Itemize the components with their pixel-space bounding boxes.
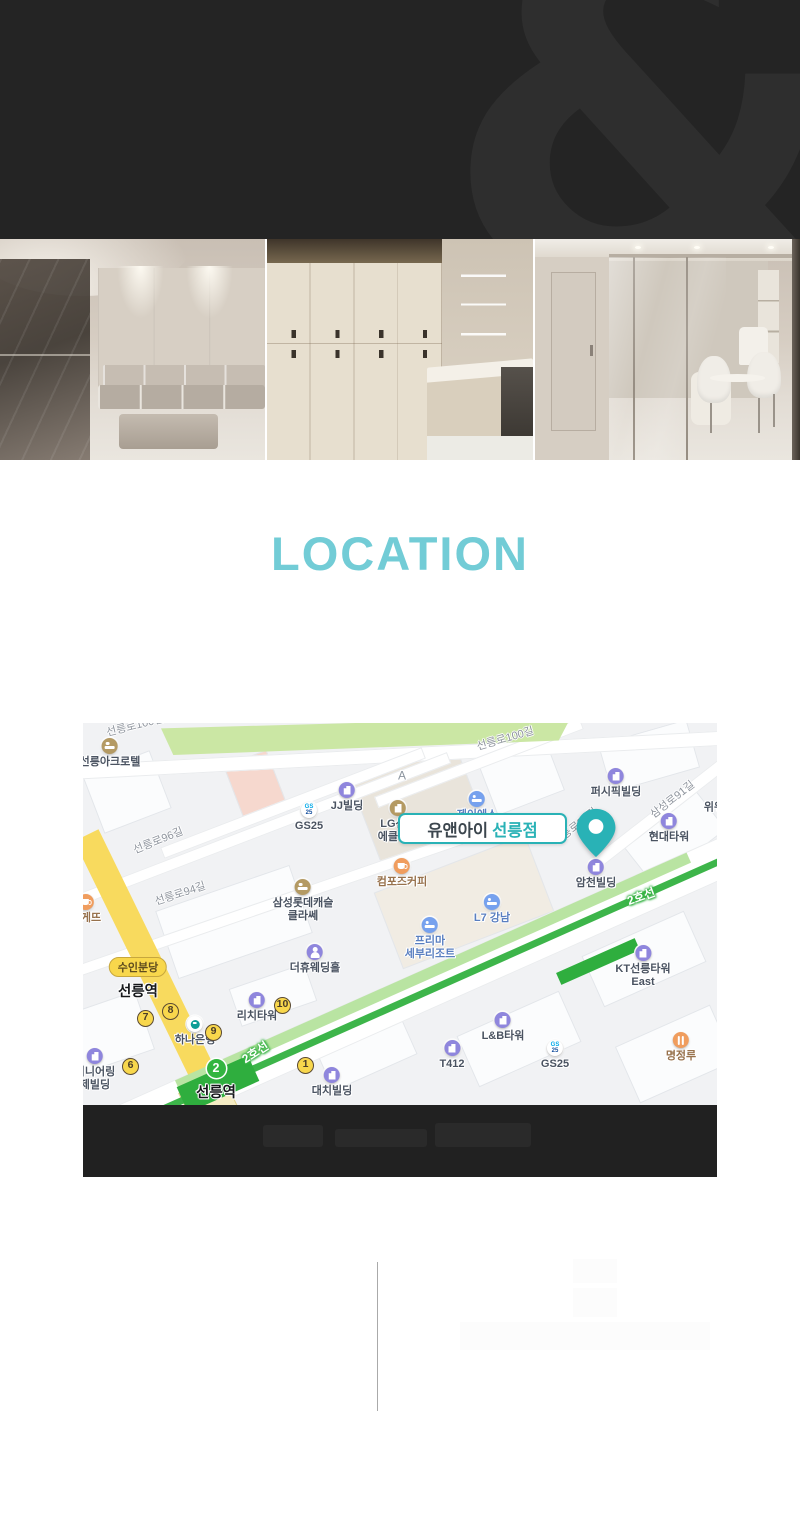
map-poi: L7 강남 [474,894,510,925]
map-poi-label: 퍼시픽빌딩 [591,786,642,799]
locker-handles [267,350,442,359]
wedding-hall-icon [307,944,323,960]
building-icon [661,813,677,829]
map-poi-label: 위워 [704,802,717,815]
map-poi: GS25GS25 [295,802,323,833]
line2-label: 2호선 [625,883,658,909]
door [551,272,596,431]
map-poi-label: 바게뜨 [83,912,101,925]
map-road-label: 선릉로100길 [475,723,536,754]
locker-top-band [267,239,442,263]
dark-shelf-unit [461,239,506,358]
building-icon [249,992,265,1008]
table [710,374,766,382]
spotlight-glow [117,266,165,319]
map-poi-label: 대치빌딩 [312,1085,352,1098]
map-poi-label: 컴포즈커피 [377,876,428,889]
subway-exit-badge: 9 [205,1024,222,1041]
gs25-icon: GS25 [547,1040,563,1056]
bakery-icon [83,894,94,910]
map-poi: 컴포즈커피 [377,858,428,889]
map-poi-label: 현대타워 [649,831,689,844]
line2-label: 2호선 [238,1037,271,1067]
map-poi: 퍼시픽빌딩 [591,768,642,799]
map-poi-label: 선릉아크로텔 [83,756,140,769]
map-poi: 프리마세부리조트 [405,917,456,961]
ceiling-spotlight [694,246,700,249]
clinic-name: 유앤아이 [427,817,488,841]
map-poi: 지니어링제빌딩 [83,1048,115,1092]
station-line-badge: 수인분당 [109,957,167,977]
ottoman [119,414,217,449]
map-poi-label: A [398,770,406,783]
building-icon [339,782,355,798]
building-icon [444,1040,460,1056]
ceiling-spotlight [768,246,774,249]
building-icon [588,859,604,875]
faint-mark [335,1129,427,1147]
map-poi-label: L7 강남 [474,912,510,925]
map-bottom-dark-bar [83,1105,717,1177]
hotel-icon [102,738,118,754]
map-poi-label: GS25 [541,1058,569,1071]
map-poi: 리치타워 [237,992,277,1023]
subway-exit-badge: 6 [122,1058,139,1075]
chair-leg [758,398,760,433]
right-dark-edge [792,239,800,460]
interior-photo-consult-room [535,239,800,460]
faint-mark [435,1123,531,1147]
coffee-icon [394,858,410,874]
restaurant-icon [673,1032,689,1048]
chair-leg [773,394,775,427]
map-poi: 선릉아크로텔 [83,738,140,769]
map-poi-label: 삼성롯데캐슬클라쎄 [273,897,334,923]
map-poi-label: L&B타워 [482,1030,525,1043]
vertical-divider [377,1262,378,1411]
map-poi: 현대타워 [649,813,689,844]
hotel-icon [484,894,500,910]
map-poi: 암천빌딩 [576,859,616,890]
station-name: 선릉역 [196,1081,236,1102]
building-icon [495,1012,511,1028]
locker-handles [267,330,442,339]
subway-exit-badge: 8 [162,1003,179,1020]
map-poi: 더휴웨딩홀 [290,944,341,975]
bench-backrest [103,365,265,387]
clinic-marker-label: 유앤아이 선릉점 [398,813,567,844]
map-poi-label: 암천빌딩 [576,877,616,890]
map-poi: 명정루 [666,1032,696,1063]
interior-photo-waiting-area [0,239,265,460]
map-poi: 바게뜨 [83,894,101,925]
ampersand-watermark-icon: & [442,0,800,239]
faint-mark [263,1125,323,1147]
map-poi-label: 지니어링제빌딩 [83,1066,115,1092]
glass-highlight-line [0,354,90,356]
hana-bank-icon [187,1016,203,1032]
map-poi-label: GS25 [295,820,323,833]
hero-header: & [0,0,800,239]
map-poi-label: 명정루 [666,1050,696,1063]
map-poi: GS25GS25 [541,1040,569,1071]
map-poi: T412 [439,1040,464,1071]
faint-placeholder [460,1322,710,1350]
station-line-badge: 2 [207,1059,226,1078]
map-poi: KT선릉타워East [615,945,670,989]
hotel-icon [295,879,311,895]
bench-seat [98,385,265,409]
map-poi-label: T412 [439,1058,464,1071]
map-poi: 삼성롯데캐슬클라쎄 [273,879,334,923]
floor [427,436,533,460]
station-name: 선릉역 [118,980,158,1001]
building-icon [608,768,624,784]
map-poi: JJ빌딩 [331,782,363,813]
map-poi-label: 리치타워 [237,1010,277,1023]
map-poi: A [398,770,406,783]
building-icon [87,1048,103,1064]
subway-exit-badge: 1 [297,1057,314,1074]
hotel-icon [469,791,485,807]
subway-exit-badge: 7 [137,1010,154,1027]
spotlight-glow [186,266,234,319]
map-poi-label: KT선릉타워East [615,963,670,989]
map-poi: 위워 [704,802,717,815]
building-icon [324,1067,340,1083]
map-poi-label: JJ빌딩 [331,800,363,813]
gs25-icon: GS25 [301,802,317,818]
map-poi: L&B타워 [482,1012,525,1043]
page: { "colors": { "header_dark": "#242424", … [0,0,800,1514]
map: 선릉로100길선릉로100길선릉로96길선릉로94길삼성로91길선릉로92길2호… [83,723,717,1177]
interior-photo-gallery [0,239,800,460]
door-handle [590,345,593,356]
subway-exit-badge: 10 [274,997,291,1014]
map-road-label: 선릉로96길 [131,823,186,858]
faint-placeholder [573,1288,617,1317]
map-station: 2선릉역 [196,1059,236,1102]
map-pin-icon [573,808,619,858]
glass-partition [0,259,90,460]
faint-placeholder [573,1259,617,1283]
building-icon [635,945,651,961]
hotel-icon [422,917,438,933]
map-station: 수인분당선릉역 [109,957,167,1001]
map-poi-label: 더휴웨딩홀 [290,962,341,975]
ceiling-spotlight [635,246,641,249]
chair-leg [710,403,712,434]
map-poi: 대치빌딩 [312,1067,352,1098]
map-road-label: 선릉로94길 [152,877,207,909]
clinic-branch: 선릉점 [492,817,538,841]
section-title: LOCATION [0,526,800,581]
map-poi-label: 프리마세부리조트 [405,935,456,961]
interior-photo-locker-room [267,239,532,460]
